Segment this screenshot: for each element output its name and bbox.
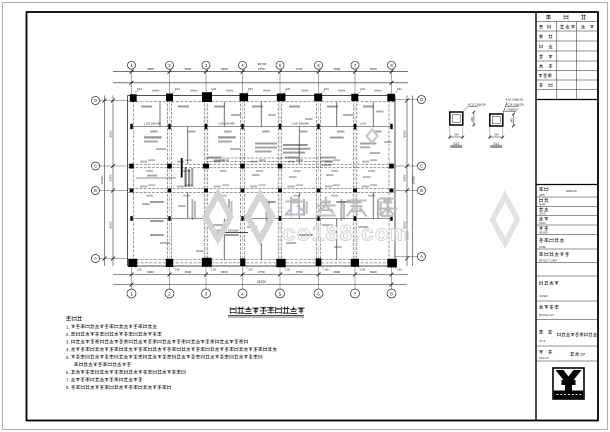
svg-text:C: C bbox=[94, 164, 97, 169]
svg-text:DATE: DATE bbox=[539, 194, 545, 197]
svg-text:L1(7): L1(7) bbox=[360, 121, 366, 125]
svg-text:2005-11: 2005-11 bbox=[566, 189, 577, 193]
svg-text:3600: 3600 bbox=[221, 270, 228, 274]
svg-text:A H1 C8@1H1: A H1 C8@1H1 bbox=[506, 98, 524, 102]
svg-text:1-50: 1-50 bbox=[285, 269, 291, 272]
svg-text:6000: 6000 bbox=[403, 130, 407, 137]
svg-text:EXAM.: EXAM. bbox=[539, 222, 547, 225]
svg-text:KZ1: KZ1 bbox=[324, 87, 329, 91]
svg-text:3600: 3600 bbox=[184, 270, 191, 274]
svg-text:A: A bbox=[420, 254, 423, 259]
svg-text:1.: 1. bbox=[66, 324, 70, 329]
svg-text:B: B bbox=[420, 188, 423, 193]
svg-text:2.: 2. bbox=[66, 332, 70, 337]
svg-text:1-50: 1-50 bbox=[137, 269, 143, 272]
svg-text:3900: 3900 bbox=[147, 270, 154, 274]
svg-text:26700: 26700 bbox=[258, 62, 267, 66]
svg-text:7.: 7. bbox=[66, 378, 70, 383]
svg-text:L1(7) 200x400: L1(7) 200x400 bbox=[144, 121, 161, 125]
svg-text:6000: 6000 bbox=[109, 221, 113, 228]
svg-text:1-50: 1-50 bbox=[324, 269, 330, 272]
svg-text:DWG NO.: DWG NO. bbox=[539, 358, 550, 360]
svg-text:14400: 14400 bbox=[100, 175, 104, 184]
svg-text:GL1: GL1 bbox=[493, 142, 500, 146]
svg-text:8.: 8. bbox=[66, 385, 70, 390]
svg-text:1-50: 1-50 bbox=[211, 269, 217, 272]
svg-text:APPR.: APPR. bbox=[539, 203, 546, 206]
svg-text:2400: 2400 bbox=[403, 174, 407, 181]
svg-text:3600: 3600 bbox=[184, 67, 191, 71]
svg-text:4.: 4. bbox=[66, 347, 70, 352]
svg-text:3900: 3900 bbox=[370, 270, 377, 274]
svg-text:CHIEF: CHIEF bbox=[539, 247, 546, 249]
svg-text:TITLE: TITLE bbox=[539, 341, 546, 343]
svg-text:KZ1: KZ1 bbox=[212, 87, 217, 91]
svg-text:co188.com: co188.com bbox=[283, 221, 411, 246]
svg-text:3600: 3600 bbox=[333, 67, 340, 71]
svg-text:2400: 2400 bbox=[109, 174, 113, 181]
svg-text:07: 07 bbox=[581, 352, 586, 357]
svg-text:KZ1: KZ1 bbox=[397, 87, 402, 91]
svg-text:1-50: 1-50 bbox=[397, 269, 403, 272]
svg-text:D: D bbox=[420, 97, 423, 102]
svg-text:240: 240 bbox=[509, 118, 513, 123]
svg-text:L1(7) 200x400: L1(7) 200x400 bbox=[218, 121, 235, 125]
svg-text:3600: 3600 bbox=[221, 67, 228, 71]
svg-text:1-50: 1-50 bbox=[175, 269, 181, 272]
svg-text:C6@200: C6@200 bbox=[507, 108, 518, 112]
svg-text:B: B bbox=[94, 188, 97, 193]
svg-text:DESIGN: DESIGN bbox=[539, 232, 548, 234]
svg-text:4C14 C6@200: 4C14 C6@200 bbox=[506, 103, 524, 107]
svg-text:240: 240 bbox=[494, 133, 499, 137]
svg-text:240: 240 bbox=[454, 133, 459, 137]
svg-text:D: D bbox=[94, 98, 97, 103]
svg-text:3.: 3. bbox=[66, 340, 70, 345]
svg-text:CHKD: CHKD bbox=[539, 213, 546, 215]
svg-text:3750: 3750 bbox=[258, 67, 265, 71]
svg-text:14400: 14400 bbox=[411, 175, 415, 184]
svg-text:KZ1: KZ1 bbox=[175, 87, 180, 91]
svg-text:3750: 3750 bbox=[296, 270, 303, 274]
svg-text:KZ1: KZ1 bbox=[248, 87, 253, 91]
svg-text:PROJECT NO.: PROJECT NO. bbox=[539, 315, 555, 317]
svg-text:C: C bbox=[420, 164, 423, 169]
svg-text:3750: 3750 bbox=[296, 67, 303, 71]
svg-text:1-50: 1-50 bbox=[248, 269, 254, 272]
svg-text:4C12 C6@200: 4C12 C6@200 bbox=[468, 103, 486, 107]
svg-text:1-50: 1-50 bbox=[360, 269, 366, 272]
svg-text:PROJECT CHIEF: PROJECT CHIEF bbox=[539, 260, 558, 262]
svg-text:L1(7) 200x400: L1(7) 200x400 bbox=[292, 121, 309, 125]
svg-text:KZ1: KZ1 bbox=[137, 87, 142, 91]
svg-text:KZ1: KZ1 bbox=[286, 87, 291, 91]
svg-text:GZ1: GZ1 bbox=[453, 142, 460, 146]
svg-text:OWNER: OWNER bbox=[539, 296, 548, 298]
svg-text:3750: 3750 bbox=[258, 270, 265, 274]
svg-text:240: 240 bbox=[470, 117, 474, 122]
svg-text:3600: 3600 bbox=[333, 270, 340, 274]
svg-text:26700: 26700 bbox=[257, 280, 266, 284]
svg-text:6000: 6000 bbox=[109, 130, 113, 137]
svg-text:6.: 6. bbox=[66, 370, 70, 375]
svg-text:5.: 5. bbox=[66, 355, 70, 360]
svg-text:3900: 3900 bbox=[370, 67, 377, 71]
svg-text:3900: 3900 bbox=[147, 67, 154, 71]
svg-text:A: A bbox=[94, 256, 97, 261]
svg-text:KZ1: KZ1 bbox=[361, 87, 366, 91]
